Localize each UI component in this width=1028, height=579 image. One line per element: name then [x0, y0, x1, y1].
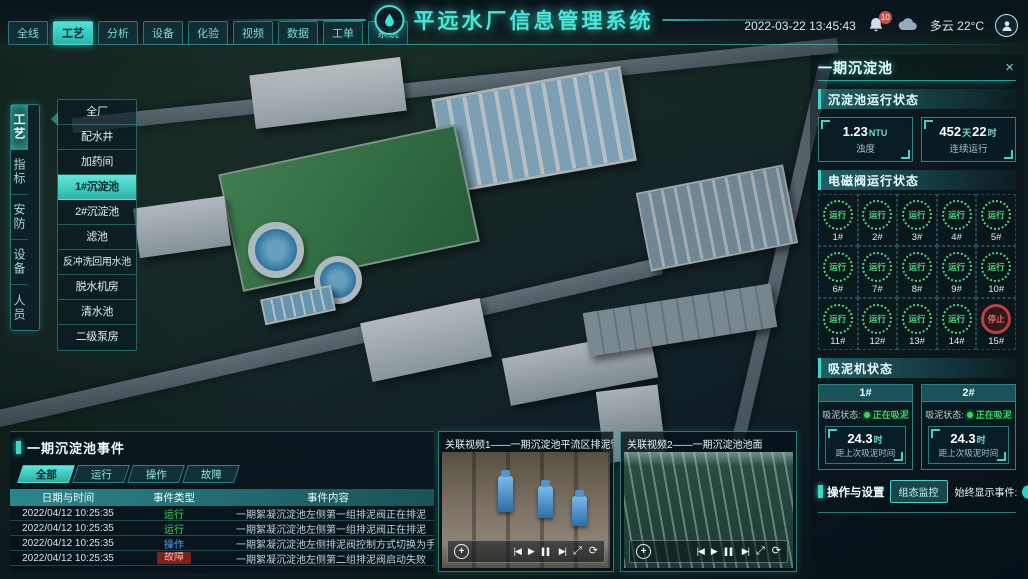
event-row[interactable]: 2022/04/12 10:25:35 运行 一期絮凝沉淀池左侧第一组排泥阀正在…	[10, 506, 434, 521]
stat-value: 24.3	[950, 431, 975, 446]
app-title: 平远水厂信息管理系统	[414, 5, 654, 35]
fullscreen-icon[interactable]	[756, 546, 765, 557]
play-icon[interactable]	[528, 547, 535, 556]
left-menu-item[interactable]: 工艺	[11, 105, 28, 150]
valve-id: 6#	[819, 284, 857, 295]
valve-status: 运行	[948, 313, 965, 325]
mud-status-label: 吸泥状态:	[925, 408, 964, 421]
pump-shape	[498, 476, 513, 512]
submenu-item[interactable]: 清水池	[58, 300, 136, 325]
mud-status-value: 正在吸泥	[976, 408, 1012, 421]
nav-tab[interactable]: 全线	[8, 21, 48, 45]
col-type: 事件类型	[126, 490, 222, 505]
valve-id: 14#	[938, 336, 976, 347]
pump-shape	[572, 496, 587, 526]
left-menu-item[interactable]: 人员	[11, 285, 28, 330]
skip-forward-icon[interactable]	[742, 547, 749, 556]
skip-back-icon[interactable]	[697, 547, 704, 556]
status-dot-icon	[967, 412, 973, 418]
valve-cell[interactable]: 停止15#	[976, 298, 1016, 350]
events-panel: 一期沉淀池事件 全部 运行 操作 故障 日期与时间 事件类型 事件内容 2022…	[10, 431, 434, 573]
process-submenu: 全厂 配水井 加药间 1#沉淀池 2#沉淀池 滤池 反冲洗回用水池 脱水机房 清…	[57, 99, 137, 351]
valve-gauge: 运行	[823, 304, 853, 334]
pump-shape	[538, 486, 553, 518]
mud-time-box: 24.3时 距上次吸泥时间	[825, 426, 906, 464]
valve-cell[interactable]: 运行10#	[976, 246, 1016, 298]
left-menu-item[interactable]: 设备	[11, 240, 28, 285]
valve-gauge: 运行	[902, 304, 932, 334]
operations-title: 操作与设置	[827, 484, 885, 500]
player-buttons	[697, 546, 781, 557]
valve-id: 10#	[977, 284, 1015, 295]
alarm-badge: 10	[879, 11, 892, 24]
valve-status: 运行	[908, 313, 925, 325]
weather-cloud-icon	[897, 17, 919, 34]
valve-cell[interactable]: 运行3#	[897, 194, 937, 246]
event-filter-tabs: 全部 运行 操作 故障	[20, 465, 434, 483]
logo-icon	[375, 5, 405, 35]
events-panel-header: 一期沉淀池事件	[10, 436, 434, 461]
valve-id: 2#	[859, 232, 897, 243]
valve-status: 运行	[829, 313, 846, 325]
valve-cell[interactable]: 运行12#	[858, 298, 898, 350]
event-content: 一期絮凝沉淀池左侧第一组排泥阀正在排泥	[222, 521, 434, 536]
nav-tab[interactable]: 设备	[143, 21, 183, 45]
valve-status: 停止	[988, 313, 1005, 325]
valve-id: 8#	[898, 284, 936, 295]
video-panel-2: 关联视频2——一期沉淀池池面	[620, 431, 797, 572]
left-menu-item[interactable]: 安防	[11, 195, 28, 240]
alarm-bell-icon[interactable]: 10	[867, 16, 886, 35]
tab-label: 操作	[146, 467, 167, 482]
tab-operate[interactable]: 操作	[127, 465, 185, 483]
submenu-item[interactable]: 2#沉淀池	[58, 200, 136, 225]
valve-status: 运行	[948, 261, 965, 273]
stat-value: 22	[972, 124, 986, 139]
stat-value: 24.3	[847, 431, 872, 446]
event-type-badge: 故障	[157, 552, 191, 564]
submenu-item[interactable]: 配水井	[58, 125, 136, 150]
mud-machine-card-2: 2# 吸泥状态: 正在吸泥 24.3时 距上次吸泥时间	[921, 384, 1016, 470]
tab-label: 全部	[36, 467, 57, 482]
submenu-item[interactable]: 二级泵房	[58, 325, 136, 350]
stat-label: 连续运行	[949, 141, 987, 155]
replay-icon[interactable]	[772, 546, 781, 557]
valve-gauge: 运行	[981, 200, 1011, 230]
event-type-badge: 运行	[164, 521, 184, 536]
skip-forward-icon[interactable]	[559, 547, 566, 556]
stat-value: 452	[939, 124, 961, 139]
valve-status: 运行	[948, 209, 965, 221]
accent-square	[16, 441, 21, 454]
valve-id: 13#	[898, 336, 936, 347]
valve-gauge: 运行	[942, 200, 972, 230]
stat-turbidity: 1.23NTU 浊度	[818, 117, 913, 162]
operations-section: 操作与设置 组态监控 始终显示事件:	[818, 480, 1016, 513]
valve-cell[interactable]: 运行1#	[818, 194, 858, 246]
valve-id: 7#	[859, 284, 897, 295]
event-content: 一期絮凝沉淀池左侧第一组排泥阀正在排泥	[222, 506, 434, 521]
nav-tab[interactable]: 工艺	[53, 21, 93, 45]
video-2-stream[interactable]	[624, 452, 793, 568]
event-type-badge: 运行	[164, 506, 184, 521]
event-table-header: 日期与时间 事件类型 事件内容	[10, 489, 434, 506]
valve-gauge: 运行	[823, 200, 853, 230]
left-category-menu: 工艺 指标 安防 设备 人员	[10, 104, 40, 331]
stat-value: 1.23	[843, 124, 868, 139]
valve-status: 运行	[829, 209, 846, 221]
valve-gauge: 运行	[942, 252, 972, 282]
stat-unit: NTU	[869, 128, 888, 138]
valve-cell[interactable]: 运行2#	[858, 194, 898, 246]
col-content: 事件内容	[222, 490, 434, 505]
submenu-item[interactable]: 1#沉淀池	[58, 175, 136, 200]
tab-fault[interactable]: 故障	[182, 465, 240, 483]
tab-all[interactable]: 全部	[17, 465, 75, 483]
event-time: 2022/04/12 10:25:35	[10, 553, 126, 564]
valve-id: 4#	[938, 232, 976, 243]
mud-status-label: 吸泥状态:	[822, 408, 861, 421]
always-show-events-toggle[interactable]	[1022, 485, 1028, 499]
stat-uptime: 452天22时 连续运行	[921, 117, 1016, 162]
mud-machine-cards: 1# 吸泥状态: 正在吸泥 24.3时 距上次吸泥时间 2# 吸泥状态: 正在吸…	[818, 384, 1016, 470]
valve-gauge: 运行	[823, 252, 853, 282]
valve-cell[interactable]: 运行14#	[937, 298, 977, 350]
accent-square	[818, 485, 823, 498]
video-1-title: 关联视频1——一期沉淀池平流区排泥管廊	[439, 432, 613, 454]
nav-tab[interactable]: 分析	[98, 21, 138, 45]
valve-cell[interactable]: 运行9#	[937, 246, 977, 298]
submenu-item[interactable]: 反冲洗回用水池	[58, 250, 136, 275]
status-dot-icon	[864, 412, 870, 418]
valve-gauge-grid: 运行1# 运行2# 运行3# 运行4# 运行5# 运行6# 运行7# 运行8# …	[818, 194, 1016, 350]
section-mud-title: 吸泥机状态	[818, 358, 1016, 378]
stat-label: 距上次吸泥时间	[939, 447, 999, 459]
video-panel-1: 关联视频1——一期沉淀池平流区排泥管廊	[438, 431, 614, 572]
event-time: 2022/04/12 10:25:35	[10, 538, 126, 549]
always-show-events-label: 始终显示事件:	[955, 484, 1018, 499]
app-root: 全线 工艺 分析 设备 化验 视频 数据 工单 系统 平远水厂信息管理系统 20…	[0, 0, 1028, 579]
valve-gauge: 运行	[942, 304, 972, 334]
player-buttons	[514, 546, 598, 557]
valve-status: 运行	[829, 261, 846, 273]
mud-machine-id: 2#	[922, 385, 1015, 402]
tab-run[interactable]: 运行	[72, 465, 130, 483]
valve-id: 1#	[819, 232, 857, 243]
pool-status-stats: 1.23NTU 浊度 452天22时 连续运行	[818, 117, 1016, 162]
col-datetime: 日期与时间	[10, 490, 126, 505]
valve-status: 运行	[988, 209, 1005, 221]
ptz-dpad-icon[interactable]	[636, 544, 651, 559]
submenu-item[interactable]: 全厂	[58, 100, 136, 125]
video-2-title: 关联视频2——一期沉淀池池面	[621, 432, 796, 454]
stat-unit: 时	[988, 128, 997, 138]
valve-gauge: 停止	[981, 304, 1011, 334]
valve-status: 运行	[869, 209, 886, 221]
valve-id: 5#	[977, 232, 1015, 243]
valve-id: 9#	[938, 284, 976, 295]
valve-id: 3#	[898, 232, 936, 243]
valve-cell[interactable]: 运行6#	[818, 246, 858, 298]
mud-time-box: 24.3时 距上次吸泥时间	[928, 426, 1009, 464]
event-row[interactable]: 2022/04/12 10:25:35 故障 一期絮凝沉淀池左侧第二组排泥阀启动…	[10, 551, 434, 566]
tab-label: 故障	[201, 467, 222, 482]
play-icon[interactable]	[711, 547, 718, 556]
stat-unit: 时	[874, 435, 883, 445]
valve-cell[interactable]: 运行11#	[818, 298, 858, 350]
scada-monitor-button[interactable]: 组态监控	[890, 480, 948, 503]
mud-machine-id: 1#	[819, 385, 912, 402]
valve-status: 运行	[988, 261, 1005, 273]
brand-deco-line	[216, 19, 366, 21]
event-type-badge: 操作	[164, 536, 184, 551]
right-panel-title: 一期沉淀池	[818, 58, 893, 78]
left-menu-item[interactable]: 指标	[11, 150, 28, 195]
skip-back-icon[interactable]	[514, 547, 521, 556]
tab-label: 运行	[91, 467, 112, 482]
user-avatar[interactable]	[995, 14, 1018, 37]
valve-cell[interactable]: 运行13#	[897, 298, 937, 350]
valve-status: 运行	[908, 209, 925, 221]
pause-icon[interactable]	[725, 547, 735, 556]
valve-status: 运行	[869, 261, 886, 273]
submenu-item[interactable]: 加药间	[58, 150, 136, 175]
valve-gauge: 运行	[902, 252, 932, 282]
video-1-stream[interactable]	[442, 452, 610, 568]
valve-id: 11#	[819, 336, 857, 347]
stat-unit: 天	[962, 128, 971, 138]
fullscreen-icon[interactable]	[573, 546, 582, 557]
valve-status: 运行	[869, 313, 886, 325]
header-status-area: 2022-03-22 13:45:43 10 多云 22°C	[744, 14, 1018, 37]
valve-gauge: 运行	[862, 252, 892, 282]
right-panel-header: 一期沉淀池 ×	[818, 55, 1016, 81]
video-1-controls	[447, 540, 605, 563]
event-row[interactable]: 2022/04/12 10:25:35 运行 一期絮凝沉淀池左侧第一组排泥阀正在…	[10, 521, 434, 536]
section-valves-title: 电磁阀运行状态	[818, 170, 1016, 190]
ptz-dpad-icon[interactable]	[454, 544, 469, 559]
valve-cell[interactable]: 运行4#	[937, 194, 977, 246]
stat-unit: 时	[977, 435, 986, 445]
valve-cell[interactable]: 运行5#	[976, 194, 1016, 246]
weather-label: 多云 22°C	[930, 17, 984, 34]
valve-cell[interactable]: 运行7#	[858, 246, 898, 298]
event-row[interactable]: 2022/04/12 10:25:35 操作 一期絮凝沉淀池左侧排泥阀控制方式切…	[10, 536, 434, 551]
datetime-label: 2022-03-22 13:45:43	[744, 19, 855, 33]
replay-icon[interactable]	[589, 546, 598, 557]
event-time: 2022/04/12 10:25:35	[10, 508, 126, 519]
stat-label: 距上次吸泥时间	[836, 447, 896, 459]
video-2-controls	[629, 540, 788, 563]
event-content: 一期絮凝沉淀池左侧排泥阀控制方式切换为手动	[222, 536, 434, 551]
mud-machine-card-1: 1# 吸泥状态: 正在吸泥 24.3时 距上次吸泥时间	[818, 384, 913, 470]
events-panel-title: 一期沉淀池事件	[27, 438, 125, 457]
valve-gauge: 运行	[902, 200, 932, 230]
valve-gauge: 运行	[862, 304, 892, 334]
valve-cell[interactable]: 运行8#	[897, 246, 937, 298]
submenu-item[interactable]: 滤池	[58, 225, 136, 250]
close-icon[interactable]: ×	[1003, 59, 1016, 76]
section-pool-status-title: 沉淀池运行状态	[818, 89, 1016, 109]
event-time: 2022/04/12 10:25:35	[10, 523, 126, 534]
valve-id: 12#	[859, 336, 897, 347]
brand: 平远水厂信息管理系统	[216, 5, 813, 35]
event-table: 日期与时间 事件类型 事件内容 2022/04/12 10:25:35 运行 一…	[10, 489, 434, 566]
valve-id: 15#	[977, 336, 1015, 347]
pause-icon[interactable]	[542, 547, 552, 556]
valve-gauge: 运行	[981, 252, 1011, 282]
top-header: 全线 工艺 分析 设备 化验 视频 数据 工单 系统 平远水厂信息管理系统 20…	[0, 0, 1028, 46]
valve-gauge: 运行	[862, 200, 892, 230]
mud-status-value: 正在吸泥	[873, 408, 909, 421]
event-content: 一期絮凝沉淀池左侧第二组排泥阀启动失败	[222, 551, 434, 566]
valve-status: 运行	[908, 261, 925, 273]
stat-label: 浊度	[856, 141, 875, 155]
right-detail-panel: 一期沉淀池 × 沉淀池运行状态 1.23NTU 浊度 452天22时 连续运行 …	[810, 55, 1024, 579]
submenu-item[interactable]: 脱水机房	[58, 275, 136, 300]
